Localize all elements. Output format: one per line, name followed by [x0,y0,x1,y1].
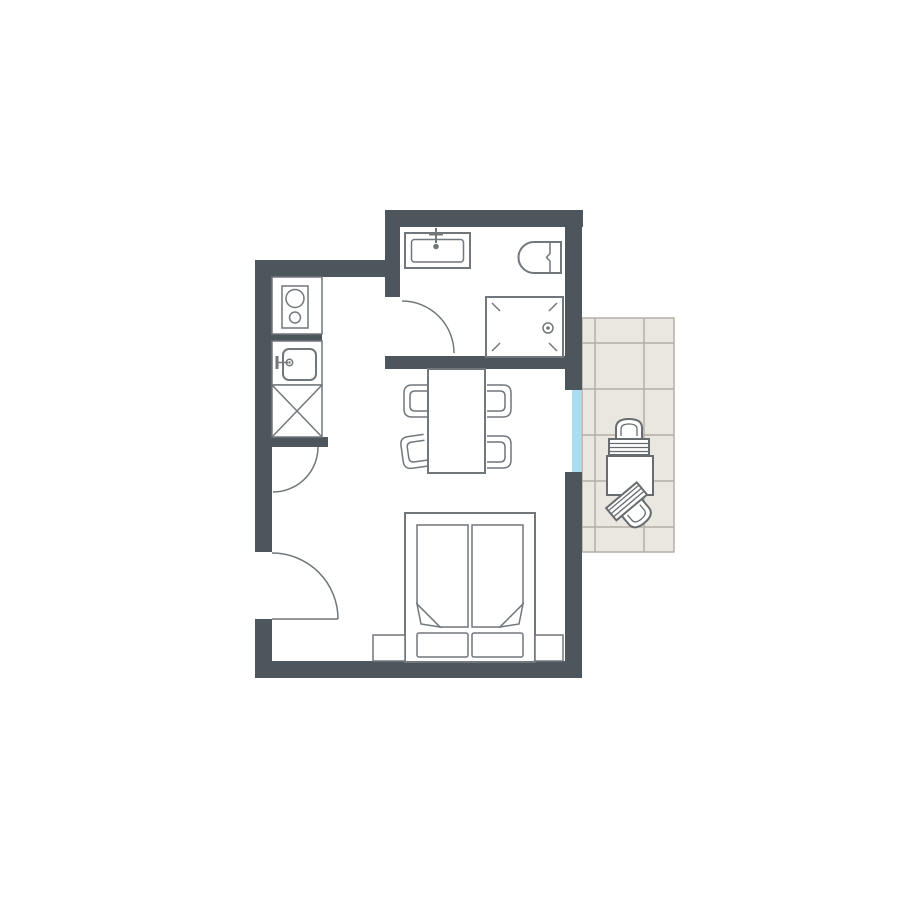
toilet [518,242,561,273]
bathroom-door-swing [402,301,454,353]
wall-right-upper [565,210,582,390]
floor-plan-drawing [0,0,900,900]
wall-left-top [255,260,400,277]
dining-area [400,369,511,473]
sleeping-area [373,513,563,662]
pillow-left [417,633,468,657]
wall-left-upper [255,260,272,552]
dining-chair-bottom-right [487,436,511,468]
dining-chair-top-left [404,385,428,417]
bathroom [405,228,563,357]
nightstand-right [535,635,563,661]
wall-right-lower [565,472,582,678]
wall-bathroom-left [385,227,400,297]
sink-faucet-dot [288,361,290,363]
bathtub-faucet-spout [433,244,439,250]
wall-kitchen-divider [255,334,322,341]
wall-kitchen-stub [258,437,328,447]
kitchen-sink [277,349,316,380]
wall-bathroom-top [385,210,583,227]
dining-table [428,369,485,473]
kitchen-door-swing [273,447,318,492]
balcony-door-window [572,390,581,472]
kitchenette [272,277,322,437]
storage-unit [272,385,322,437]
entrance-door-swing [272,553,338,619]
shower [486,297,563,357]
dining-chair-top-right [487,385,511,417]
balcony [582,318,674,552]
wall-bottom [255,661,582,678]
nightstand-left [373,635,405,661]
pillow-right [472,633,523,657]
bathtub [405,228,470,268]
dining-chair-bottom-left [400,434,428,469]
shower-drain-center [546,326,550,330]
floor-plan-canvas [0,0,900,900]
